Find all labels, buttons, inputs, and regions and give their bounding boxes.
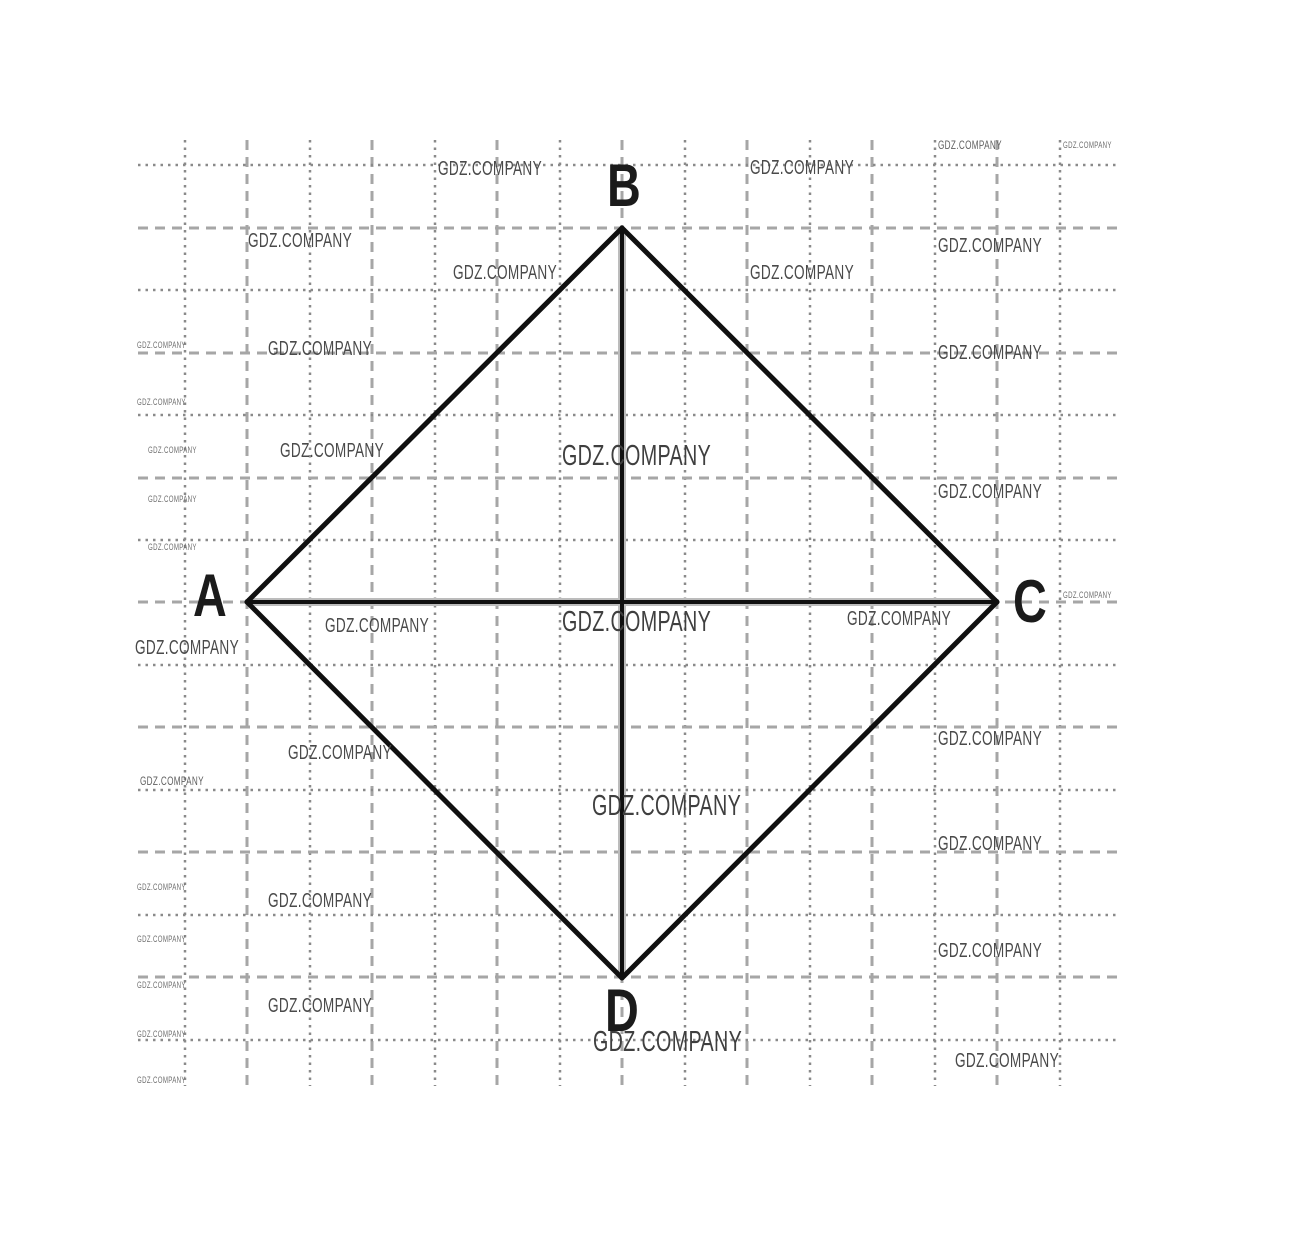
grid-and-shape-canvas xyxy=(0,0,1290,1252)
diagram-stage: GDZ.COMPANYGDZ.COMPANYGDZ.COMPANYGDZ.COM… xyxy=(0,0,1290,1252)
